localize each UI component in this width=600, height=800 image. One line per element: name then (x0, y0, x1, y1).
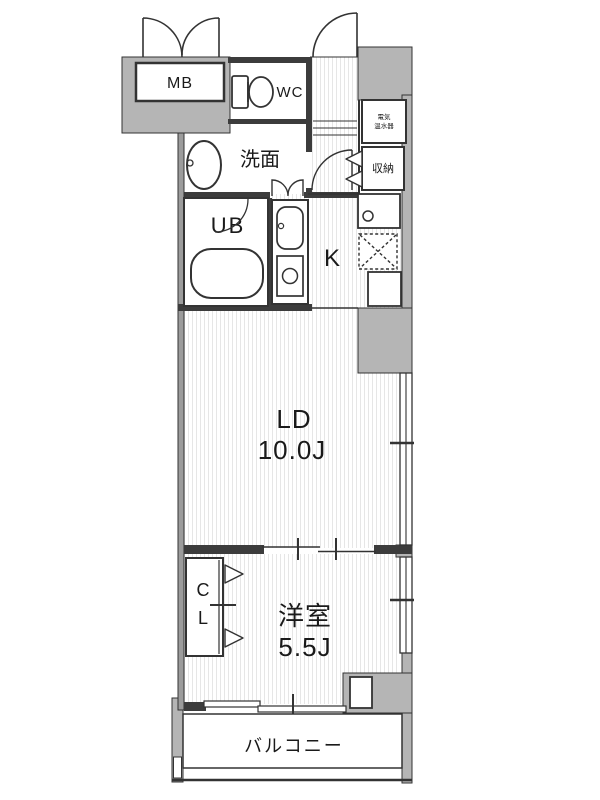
ld-corner-pillar (358, 308, 412, 373)
ld-size-label: 10.0J (258, 435, 327, 465)
closet-label-2: L (198, 608, 208, 628)
kitchen-label: K (324, 245, 340, 272)
room-ub: UB (184, 198, 268, 306)
closet-label-1: C (197, 580, 210, 600)
right-wall-low (402, 650, 412, 675)
washroom-label: 洗面 (240, 148, 280, 171)
water-heater-box: 電気 温水器 (362, 100, 406, 143)
entrance-door-icon (313, 13, 357, 57)
water-heater-label-1: 電気 (378, 112, 392, 121)
wc-label: WC (277, 84, 304, 101)
storage-label: 収納 (372, 162, 394, 175)
ld-name-label: LD (276, 404, 311, 434)
top-right-wall-block (358, 47, 412, 100)
bedroom-name-label: 洋室 (278, 601, 332, 631)
fridge-space-icon (359, 234, 397, 269)
kitchen-sink-icon (277, 207, 303, 249)
mb-door-right-icon (182, 18, 219, 57)
mb-label: MB (167, 75, 193, 92)
room-wc: WC (232, 76, 304, 108)
right-wall-balcony (402, 713, 412, 783)
pipe-space-box (350, 677, 372, 708)
floor-plan-svg: MB WC 洗面 UB (0, 0, 600, 800)
stove-icon (277, 256, 303, 296)
toilet-icon (232, 76, 273, 108)
balcony: バルコニー (172, 714, 412, 780)
bathtub-icon (191, 249, 263, 298)
washroom-double-door-icon (272, 180, 303, 196)
counter-return-box (368, 272, 401, 306)
washer-pan-icon (358, 194, 400, 228)
bedroom-size-label: 5.5J (278, 632, 331, 662)
balcony-partition (174, 757, 182, 778)
mb-door-left-icon (143, 18, 182, 57)
ub-label: UB (211, 213, 246, 238)
floor-plan-page: MB WC 洗面 UB (0, 0, 600, 800)
water-heater-label-2: 温水器 (374, 121, 394, 130)
balcony-label: バルコニー (244, 736, 344, 756)
washbasin-icon (187, 141, 221, 189)
